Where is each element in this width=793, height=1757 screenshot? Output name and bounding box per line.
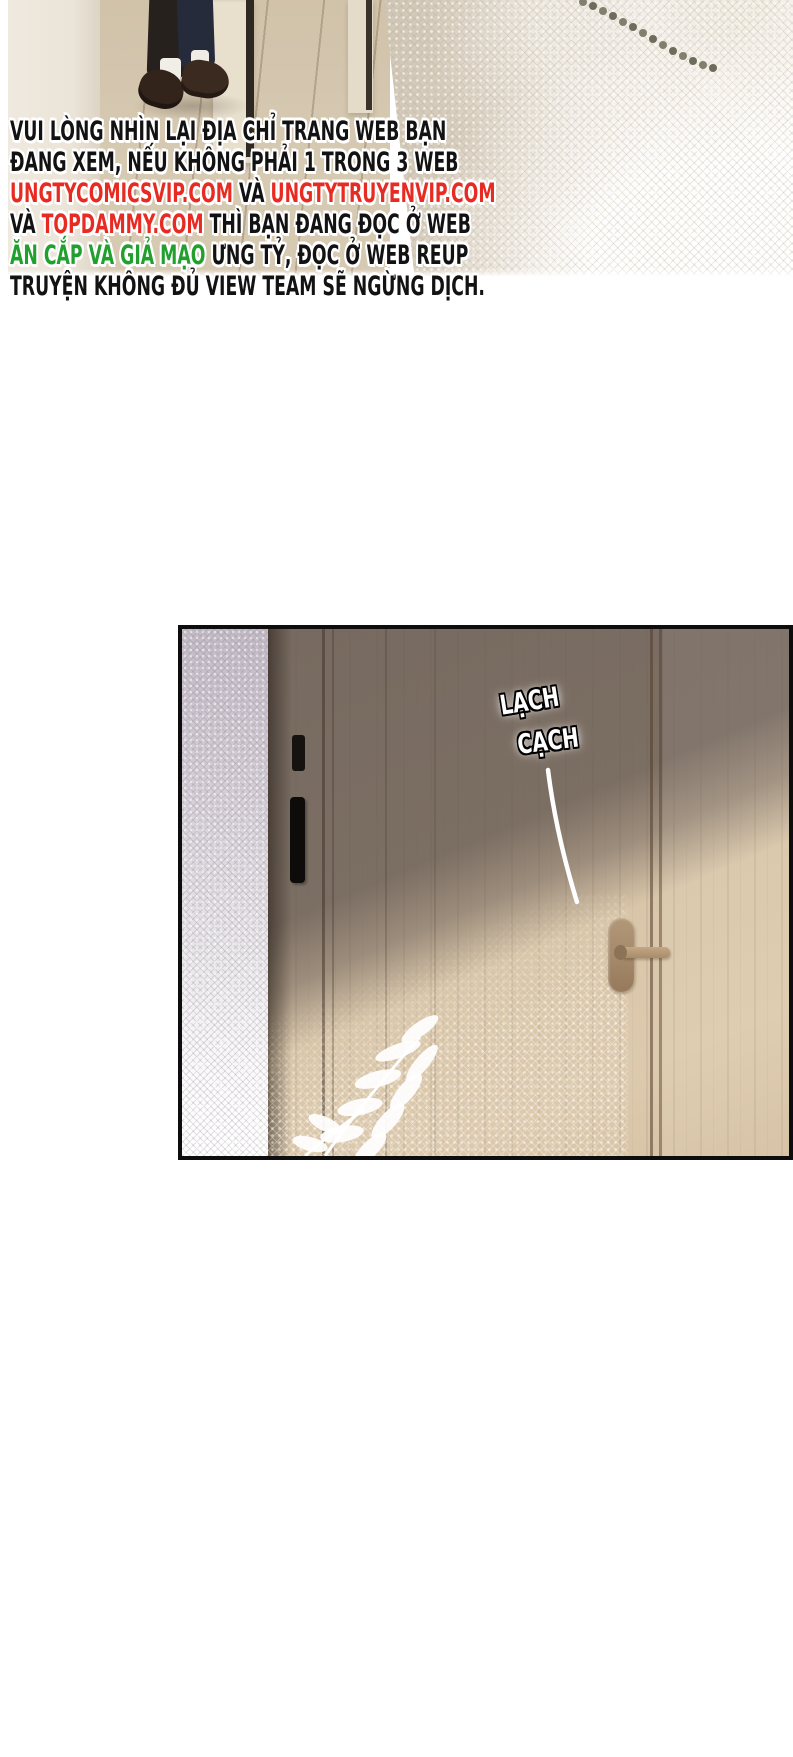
warning-segment: UNGTYCOMICSVIP.COM [10,178,233,209]
warning-segment: VÀ [10,209,42,240]
warning-segment: VÀ [233,178,271,209]
door-handle-lever [620,947,670,958]
warning-segment: UNGTYTRUYENVIP.COM [271,178,496,209]
warning-line-3: UNGTYCOMICSVIP.COM VÀ UNGTYTRUYENVIP.COM [10,178,458,209]
warning-segment: VUI LÒNG NHÌN LẠI ĐỊA CHỈ TRANG WEB BẠN [10,116,446,147]
warning-segment: ĐANG XEM, NẾU KHÔNG PHẢI 1 TRONG 3 WEB [10,147,458,178]
door-gap-2 [366,0,372,110]
sfx-cach: CẠCH [516,725,580,759]
sfx-tail-line [534,764,594,909]
warning-segment: TRUYỆN KHÔNG ĐỦ VIEW TEAM SẼ NGỪNG DỊCH. [10,271,485,302]
bead-chain [575,0,735,80]
warning-line-6: TRUYỆN KHÔNG ĐỦ VIEW TEAM SẼ NGỪNG DỊCH. [10,271,458,302]
warning-line-2: ĐANG XEM, NẾU KHÔNG PHẢI 1 TRONG 3 WEB [10,147,458,178]
warning-segment: TOPDAMMY.COM [42,209,204,240]
warning-segment: THÌ BẠN ĐANG ĐỌC Ở WEB [204,209,471,240]
warning-line-5: ĂN CẮP VÀ GIẢ MẠO ƯNG TỶ, ĐỌC Ở WEB REUP [10,240,458,271]
leaf-decals [270,959,540,1156]
door-frame-line [659,629,662,1156]
door-latch-top [292,735,305,771]
door-frame-line [650,629,653,1156]
panel-door-scene: LẠCH CẠCH [178,625,793,1160]
comic-page: VUI LÒNG NHÌN LẠI ĐỊA CHỈ TRANG WEB BẠNĐ… [0,0,793,1757]
warning-line-4: VÀ TOPDAMMY.COM THÌ BẠN ĐANG ĐỌC Ở WEB [10,209,458,240]
door-handle-knob [614,945,627,960]
warning-segment: ƯNG TỶ, ĐỌC Ở WEB REUP [205,240,468,271]
door-latch-bottom [290,797,305,883]
anti-piracy-warning: VUI LÒNG NHÌN LẠI ĐỊA CHỈ TRANG WEB BẠNĐ… [10,116,710,302]
door-right-section [663,629,789,1156]
warning-segment: ĂN CẮP VÀ GIẢ MẠO [10,240,205,271]
warning-line-1: VUI LÒNG NHÌN LẠI ĐỊA CHỈ TRANG WEB BẠN [10,116,458,147]
